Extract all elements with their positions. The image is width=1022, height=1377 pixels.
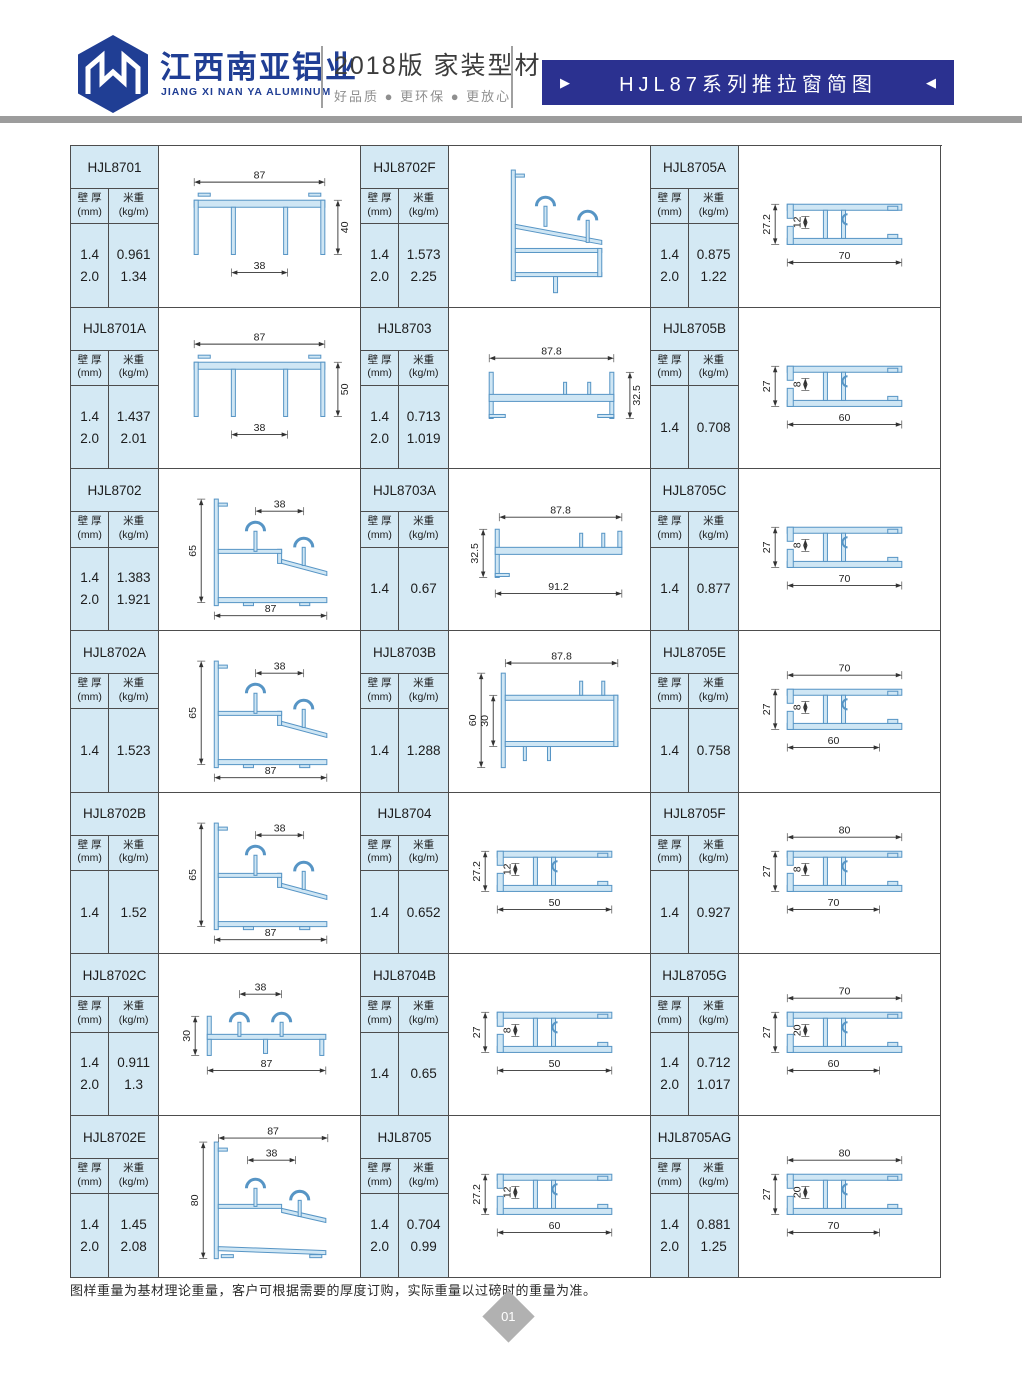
profile-cell-hjl8703: HJL8703壁 厚(mm)米重(kg/m)1.42.00.7131.01987… <box>361 308 651 470</box>
weight-values: 0.877 <box>689 548 738 630</box>
svg-text:87: 87 <box>265 765 277 777</box>
profile-drawing: 7027860 <box>739 631 940 792</box>
svg-text:30: 30 <box>479 715 491 727</box>
weight-value: 0.708 <box>697 420 731 435</box>
thickness-values: 1.42.0 <box>71 224 109 306</box>
spec-table-body: 1.42.01.5732.25 <box>361 224 448 306</box>
weight-value: 1.22 <box>700 269 726 284</box>
weight-header: 米重(kg/m) <box>399 836 448 870</box>
weight-header: 米重(kg/m) <box>689 512 738 546</box>
weight-values: 0.7131.019 <box>399 386 448 468</box>
weight-header: 米重(kg/m) <box>689 189 738 223</box>
model-label: HJL8701A <box>71 308 158 351</box>
weight-values: 0.8751.22 <box>689 224 738 306</box>
thickness-value: 1.4 <box>80 905 99 920</box>
thickness-header: 壁 厚(mm) <box>361 189 399 223</box>
thickness-value: 2.0 <box>660 1077 679 1092</box>
thickness-value: 1.4 <box>370 409 389 424</box>
svg-text:87: 87 <box>265 927 277 939</box>
model-label: HJL8701 <box>71 146 158 189</box>
profile-drawing: 70272060 <box>739 954 940 1115</box>
spec-table-header: 壁 厚(mm)米重(kg/m) <box>361 189 448 224</box>
profile-drawing: 27.21260 <box>449 1116 650 1277</box>
weight-value: 1.019 <box>407 431 441 446</box>
model-label: HJL8705F <box>651 793 738 836</box>
profile-info-panel: HJL8704B壁 厚(mm)米重(kg/m)1.40.65 <box>361 954 449 1115</box>
profile-info-panel: HJL8702A壁 厚(mm)米重(kg/m)1.41.523 <box>71 631 159 792</box>
model-label: HJL8705G <box>651 954 738 997</box>
thickness-header: 壁 厚(mm) <box>361 1159 399 1193</box>
profile-info-panel: HJL8705C壁 厚(mm)米重(kg/m)1.40.877 <box>651 469 739 630</box>
profile-cell-hjl8703b: HJL8703B壁 厚(mm)米重(kg/m)1.41.28887.86030 <box>361 631 651 793</box>
model-label: HJL8702B <box>71 793 158 836</box>
svg-text:70: 70 <box>828 897 840 909</box>
profile-drawing: 386587 <box>159 631 360 792</box>
weight-value: 1.52 <box>120 905 146 920</box>
thickness-header: 壁 厚(mm) <box>651 351 689 385</box>
weight-values: 0.9111.3 <box>109 1033 158 1115</box>
weight-value: 0.961 <box>117 247 151 262</box>
svg-text:8: 8 <box>501 1028 513 1034</box>
spec-table-header: 壁 厚(mm)米重(kg/m) <box>361 351 448 386</box>
model-label: HJL8705B <box>651 308 738 351</box>
thickness-value: 1.4 <box>660 743 679 758</box>
weight-values: 0.7121.017 <box>689 1033 738 1115</box>
svg-text:27.2: 27.2 <box>761 214 773 235</box>
profile-cell-hjl8701a: HJL8701A壁 厚(mm)米重(kg/m)1.42.01.4372.0187… <box>71 308 361 470</box>
spec-table-body: 1.40.652 <box>361 871 448 953</box>
model-label: HJL8702 <box>71 469 158 512</box>
tagline: 好品质 ● 更环保 ● 更放心 <box>334 86 511 105</box>
profile-info-panel: HJL8705F壁 厚(mm)米重(kg/m)1.40.927 <box>651 793 739 954</box>
profile-cell-hjl8702f: HJL8702F壁 厚(mm)米重(kg/m)1.42.01.5732.25 <box>361 146 651 308</box>
svg-text:60: 60 <box>467 714 479 726</box>
thickness-values: 1.4 <box>651 386 689 468</box>
spec-table-header: 壁 厚(mm)米重(kg/m) <box>651 189 738 224</box>
profile-info-panel: HJL8702E壁 厚(mm)米重(kg/m)1.42.01.452.08 <box>71 1116 159 1277</box>
thickness-values: 1.4 <box>361 709 399 791</box>
company-name-cn: 江西南亚铝业 <box>160 42 358 87</box>
weight-values: 1.52 <box>109 871 158 953</box>
thickness-values: 1.4 <box>361 871 399 953</box>
profile-drawing: 80272070 <box>739 1116 940 1277</box>
svg-text:87: 87 <box>254 331 266 343</box>
weight-header: 米重(kg/m) <box>689 836 738 870</box>
spec-table-body: 1.40.67 <box>361 548 448 630</box>
profile-grid: HJL8701壁 厚(mm)米重(kg/m)1.42.00.9611.34873… <box>70 145 942 1278</box>
weight-header: 米重(kg/m) <box>109 836 158 870</box>
spec-table-body: 1.42.01.3831.921 <box>71 548 158 630</box>
svg-text:20: 20 <box>791 1186 803 1198</box>
profile-cell-hjl8705a: HJL8705A壁 厚(mm)米重(kg/m)1.42.00.8751.2227… <box>651 146 941 308</box>
thickness-header: 壁 厚(mm) <box>361 836 399 870</box>
model-label: HJL8702E <box>71 1116 158 1159</box>
profile-cell-hjl8702a: HJL8702A壁 厚(mm)米重(kg/m)1.41.523386587 <box>71 631 361 793</box>
weight-value: 1.523 <box>117 743 151 758</box>
profile-drawing: 8027870 <box>739 793 940 954</box>
thickness-value: 2.0 <box>80 269 99 284</box>
profile-info-panel: HJL8702壁 厚(mm)米重(kg/m)1.42.01.3831.921 <box>71 469 159 630</box>
thickness-header: 壁 厚(mm) <box>361 351 399 385</box>
weight-value: 1.921 <box>117 592 151 607</box>
weight-values: 0.758 <box>689 709 738 791</box>
thickness-values: 1.4 <box>361 548 399 630</box>
weight-header: 米重(kg/m) <box>399 512 448 546</box>
weight-value: 1.437 <box>117 409 151 424</box>
profile-info-panel: HJL8705AG壁 厚(mm)米重(kg/m)1.42.00.8811.25 <box>651 1116 739 1277</box>
svg-text:38: 38 <box>255 982 267 994</box>
profile-drawing: 87.832.5 <box>449 308 650 469</box>
model-label: HJL8702A <box>71 631 158 674</box>
profile-info-panel: HJL8705A壁 厚(mm)米重(kg/m)1.42.00.8751.22 <box>651 146 739 307</box>
weight-header: 米重(kg/m) <box>689 1159 738 1193</box>
weight-header: 米重(kg/m) <box>109 512 158 546</box>
thickness-value: 1.4 <box>660 905 679 920</box>
thickness-value: 2.0 <box>80 1077 99 1092</box>
thickness-values: 1.42.0 <box>71 386 109 468</box>
weight-values: 0.927 <box>689 871 738 953</box>
footer-note: 图样重量为基材理论重量，客户可根据需要的厚度订购，实际重量以过磅时的重量为准。 <box>70 1280 597 1299</box>
weight-header: 米重(kg/m) <box>689 997 738 1031</box>
weight-values: 1.3831.921 <box>109 548 158 630</box>
weight-header: 米重(kg/m) <box>109 351 158 385</box>
thickness-values: 1.42.0 <box>71 1194 109 1276</box>
svg-text:60: 60 <box>549 1220 561 1232</box>
weight-values: 1.4372.01 <box>109 386 158 468</box>
thickness-values: 1.4 <box>651 709 689 791</box>
header-divider <box>321 46 323 108</box>
weight-values: 1.288 <box>399 709 448 791</box>
spec-table-body: 1.42.00.7040.99 <box>361 1194 448 1276</box>
thickness-values: 1.42.0 <box>361 1194 399 1276</box>
svg-text:87: 87 <box>261 1058 273 1070</box>
thickness-value: 2.0 <box>80 592 99 607</box>
header-divider <box>511 46 513 108</box>
profile-info-panel: HJL8705B壁 厚(mm)米重(kg/m)1.40.708 <box>651 308 739 469</box>
thickness-header: 壁 厚(mm) <box>651 836 689 870</box>
thickness-values: 1.42.0 <box>651 224 689 306</box>
thickness-header: 壁 厚(mm) <box>651 674 689 708</box>
thickness-value: 1.4 <box>80 570 99 585</box>
series-banner: ▶ HJL87系列推拉窗简图 ◀ <box>542 60 954 105</box>
svg-text:8: 8 <box>791 381 803 387</box>
spec-table-body: 1.40.927 <box>651 871 738 953</box>
spec-table-header: 壁 厚(mm)米重(kg/m) <box>361 674 448 709</box>
thickness-header: 壁 厚(mm) <box>71 189 109 223</box>
spec-table-header: 壁 厚(mm)米重(kg/m) <box>651 1159 738 1194</box>
svg-text:87.8: 87.8 <box>550 505 571 517</box>
thickness-values: 1.4 <box>651 548 689 630</box>
model-label: HJL8705C <box>651 469 738 512</box>
weight-value: 0.911 <box>117 1055 150 1070</box>
thickness-header: 壁 厚(mm) <box>71 674 109 708</box>
svg-text:27: 27 <box>761 380 773 392</box>
thickness-header: 壁 厚(mm) <box>651 512 689 546</box>
banner-right-arrow-icon: ◀ <box>926 75 936 91</box>
profile-info-panel: HJL8702F壁 厚(mm)米重(kg/m)1.42.01.5732.25 <box>361 146 449 307</box>
thickness-value: 1.4 <box>660 247 679 262</box>
spec-table-header: 壁 厚(mm)米重(kg/m) <box>361 836 448 871</box>
profile-drawing: 27850 <box>449 954 650 1115</box>
svg-text:38: 38 <box>254 260 266 272</box>
profile-drawing: 27860 <box>739 308 940 469</box>
spec-table-header: 壁 厚(mm)米重(kg/m) <box>651 674 738 709</box>
thickness-value: 1.4 <box>80 409 99 424</box>
profile-drawing: 87.86030 <box>449 631 650 792</box>
catalog-page: { "header": { "company_cn": "江西南亚铝业", "c… <box>0 0 1022 1377</box>
svg-text:87: 87 <box>267 1126 279 1138</box>
weight-value: 0.758 <box>697 743 731 758</box>
svg-text:32.5: 32.5 <box>469 543 481 564</box>
svg-text:60: 60 <box>828 1058 840 1070</box>
banner-left-arrow-icon: ▶ <box>560 75 570 91</box>
spec-table-header: 壁 厚(mm)米重(kg/m) <box>651 997 738 1032</box>
weight-header: 米重(kg/m) <box>109 997 158 1031</box>
profile-drawing: 27.21270 <box>739 146 940 307</box>
series-banner-title: HJL87系列推拉窗简图 <box>619 68 877 97</box>
thickness-header: 壁 厚(mm) <box>71 997 109 1031</box>
svg-text:65: 65 <box>187 707 199 719</box>
header-rule <box>0 116 1022 123</box>
model-label: HJL8705E <box>651 631 738 674</box>
thickness-values: 1.42.0 <box>71 548 109 630</box>
svg-text:27.2: 27.2 <box>471 861 483 882</box>
spec-table-body: 1.42.00.9111.3 <box>71 1033 158 1115</box>
spec-table-body: 1.40.877 <box>651 548 738 630</box>
weight-value: 1.3 <box>124 1077 143 1092</box>
profile-cell-hjl8705f: HJL8705F壁 厚(mm)米重(kg/m)1.40.9278027870 <box>651 793 941 955</box>
weight-value: 0.704 <box>407 1217 441 1232</box>
thickness-header: 壁 厚(mm) <box>71 512 109 546</box>
weight-value: 0.927 <box>697 905 731 920</box>
company-name-en: JIANG XI NAN YA ALUMINUM <box>161 86 331 98</box>
spec-table-header: 壁 厚(mm)米重(kg/m) <box>71 997 158 1032</box>
weight-header: 米重(kg/m) <box>109 189 158 223</box>
weight-value: 1.45 <box>120 1217 146 1232</box>
weight-value: 2.08 <box>120 1239 146 1254</box>
profile-cell-hjl8705g: HJL8705G壁 厚(mm)米重(kg/m)1.42.00.7121.0177… <box>651 954 941 1116</box>
profile-cell-hjl8702b: HJL8702B壁 厚(mm)米重(kg/m)1.41.52386587 <box>71 793 361 955</box>
profile-cell-hjl8705: HJL8705壁 厚(mm)米重(kg/m)1.42.00.7040.9927.… <box>361 1116 651 1278</box>
svg-text:27: 27 <box>471 1027 483 1039</box>
profile-cell-hjl8703a: HJL8703A壁 厚(mm)米重(kg/m)1.40.6787.832.591… <box>361 469 651 631</box>
weight-values: 0.8811.25 <box>689 1194 738 1276</box>
model-label: HJL8703B <box>361 631 448 674</box>
svg-text:70: 70 <box>828 1220 840 1232</box>
thickness-header: 壁 厚(mm) <box>361 674 399 708</box>
svg-text:12: 12 <box>791 216 803 228</box>
profile-info-panel: HJL8703B壁 厚(mm)米重(kg/m)1.41.288 <box>361 631 449 792</box>
spec-table-body: 1.42.00.9611.34 <box>71 224 158 306</box>
spec-table-body: 1.41.288 <box>361 709 448 791</box>
spec-table-header: 壁 厚(mm)米重(kg/m) <box>71 836 158 871</box>
company-logo <box>76 34 150 119</box>
profile-drawing: 873840 <box>159 146 360 307</box>
profile-info-panel: HJL8702B壁 厚(mm)米重(kg/m)1.41.52 <box>71 793 159 954</box>
svg-text:27: 27 <box>761 703 773 715</box>
profile-drawing: 386587 <box>159 469 360 630</box>
weight-header: 米重(kg/m) <box>399 997 448 1031</box>
thickness-value: 1.4 <box>80 743 99 758</box>
svg-text:27: 27 <box>761 542 773 554</box>
svg-text:60: 60 <box>828 735 840 747</box>
svg-text:50: 50 <box>339 383 351 395</box>
weight-values: 0.65 <box>399 1033 448 1115</box>
svg-text:70: 70 <box>839 250 851 262</box>
thickness-values: 1.42.0 <box>71 1033 109 1115</box>
svg-text:87.8: 87.8 <box>551 651 572 663</box>
thickness-value: 1.4 <box>370 905 389 920</box>
spec-table-body: 1.42.00.8751.22 <box>651 224 738 306</box>
thickness-header: 壁 厚(mm) <box>651 997 689 1031</box>
profile-drawing: 873850 <box>159 308 360 469</box>
model-label: HJL8703 <box>361 308 448 351</box>
svg-text:38: 38 <box>266 1148 278 1160</box>
spec-table-header: 壁 厚(mm)米重(kg/m) <box>651 512 738 547</box>
svg-text:8: 8 <box>791 866 803 872</box>
weight-header: 米重(kg/m) <box>109 1159 158 1193</box>
profile-cell-hjl8701: HJL8701壁 厚(mm)米重(kg/m)1.42.00.9611.34873… <box>71 146 361 308</box>
weight-header: 米重(kg/m) <box>689 674 738 708</box>
thickness-values: 1.42.0 <box>361 224 399 306</box>
spec-table-body: 1.40.758 <box>651 709 738 791</box>
thickness-value: 2.0 <box>370 431 389 446</box>
svg-text:12: 12 <box>501 1186 513 1198</box>
weight-values: 1.5732.25 <box>399 224 448 306</box>
model-label: HJL8702F <box>361 146 448 189</box>
profile-info-panel: HJL8701壁 厚(mm)米重(kg/m)1.42.00.9611.34 <box>71 146 159 307</box>
weight-header: 米重(kg/m) <box>689 351 738 385</box>
weight-value: 0.877 <box>697 581 731 596</box>
spec-table-header: 壁 厚(mm)米重(kg/m) <box>71 351 158 386</box>
profile-cell-hjl8705e: HJL8705E壁 厚(mm)米重(kg/m)1.40.7587027860 <box>651 631 941 793</box>
svg-text:70: 70 <box>839 986 851 998</box>
svg-text:50: 50 <box>549 1058 561 1070</box>
svg-text:20: 20 <box>791 1025 803 1037</box>
spec-table-header: 壁 厚(mm)米重(kg/m) <box>651 836 738 871</box>
profile-info-panel: HJL8705壁 厚(mm)米重(kg/m)1.42.00.7040.99 <box>361 1116 449 1277</box>
model-label: HJL8703A <box>361 469 448 512</box>
weight-value: 2.01 <box>120 431 146 446</box>
profile-info-panel: HJL8703壁 厚(mm)米重(kg/m)1.42.00.7131.019 <box>361 308 449 469</box>
svg-text:80: 80 <box>189 1194 201 1206</box>
profile-cell-hjl8705b: HJL8705B壁 厚(mm)米重(kg/m)1.40.70827860 <box>651 308 941 470</box>
model-label: HJL8702C <box>71 954 158 997</box>
svg-text:27: 27 <box>761 1188 773 1200</box>
profile-info-panel: HJL8705E壁 厚(mm)米重(kg/m)1.40.758 <box>651 631 739 792</box>
weight-header: 米重(kg/m) <box>399 351 448 385</box>
profile-info-panel: HJL8702C壁 厚(mm)米重(kg/m)1.42.00.9111.3 <box>71 954 159 1115</box>
weight-value: 0.65 <box>410 1066 436 1081</box>
page-number: 01 <box>501 1309 515 1324</box>
thickness-value: 1.4 <box>370 581 389 596</box>
weight-values: 0.9611.34 <box>109 224 158 306</box>
model-label: HJL8705 <box>361 1116 448 1159</box>
svg-text:8: 8 <box>791 543 803 549</box>
weight-values: 1.523 <box>109 709 158 791</box>
svg-text:80: 80 <box>839 824 851 836</box>
spec-table-body: 1.41.52 <box>71 871 158 953</box>
spec-table-body: 1.41.523 <box>71 709 158 791</box>
svg-text:87: 87 <box>254 170 266 182</box>
weight-header: 米重(kg/m) <box>399 189 448 223</box>
weight-value: 1.383 <box>117 570 151 585</box>
profile-drawing: 873880 <box>159 1116 360 1277</box>
profile-drawing <box>449 146 650 307</box>
thickness-value: 2.0 <box>660 1239 679 1254</box>
profile-info-panel: HJL8701A壁 厚(mm)米重(kg/m)1.42.01.4372.01 <box>71 308 159 469</box>
svg-text:38: 38 <box>274 661 286 673</box>
svg-text:27.2: 27.2 <box>471 1184 483 1205</box>
weight-value: 1.288 <box>407 743 441 758</box>
thickness-header: 壁 厚(mm) <box>71 351 109 385</box>
model-label: HJL8705AG <box>651 1116 738 1159</box>
spec-table-body: 1.42.00.8811.25 <box>651 1194 738 1276</box>
thickness-value: 2.0 <box>80 431 99 446</box>
thickness-value: 1.4 <box>660 1055 679 1070</box>
weight-values: 0.652 <box>399 871 448 953</box>
model-label: HJL8705A <box>651 146 738 189</box>
profile-cell-hjl8705ag: HJL8705AG壁 厚(mm)米重(kg/m)1.42.00.8811.258… <box>651 1116 941 1278</box>
model-label: HJL8704B <box>361 954 448 997</box>
spec-table-header: 壁 厚(mm)米重(kg/m) <box>361 997 448 1032</box>
thickness-values: 1.4 <box>651 871 689 953</box>
weight-value: 2.25 <box>410 269 436 284</box>
profile-info-panel: HJL8705G壁 厚(mm)米重(kg/m)1.42.00.7121.017 <box>651 954 739 1115</box>
weight-value: 1.34 <box>120 269 146 284</box>
weight-value: 1.25 <box>700 1239 726 1254</box>
svg-text:8: 8 <box>791 704 803 710</box>
svg-text:70: 70 <box>839 663 851 675</box>
thickness-header: 壁 厚(mm) <box>71 836 109 870</box>
spec-table-body: 1.42.01.452.08 <box>71 1194 158 1276</box>
thickness-values: 1.42.0 <box>361 386 399 468</box>
svg-text:27: 27 <box>761 865 773 877</box>
thickness-values: 1.4 <box>71 709 109 791</box>
weight-value: 0.875 <box>697 247 731 262</box>
svg-text:38: 38 <box>274 499 286 511</box>
svg-text:27: 27 <box>761 1027 773 1039</box>
weight-header: 米重(kg/m) <box>399 674 448 708</box>
profile-info-panel: HJL8704壁 厚(mm)米重(kg/m)1.40.652 <box>361 793 449 954</box>
profile-cell-hjl8705c: HJL8705C壁 厚(mm)米重(kg/m)1.40.87727870 <box>651 469 941 631</box>
thickness-values: 1.42.0 <box>651 1194 689 1276</box>
profile-drawing: 87.832.591.2 <box>449 469 650 630</box>
weight-value: 1.573 <box>407 247 441 262</box>
weight-values: 0.7040.99 <box>399 1194 448 1276</box>
profile-drawing: 386587 <box>159 793 360 954</box>
spec-table-body: 1.42.00.7131.019 <box>361 386 448 468</box>
spec-table-header: 壁 厚(mm)米重(kg/m) <box>71 674 158 709</box>
thickness-value: 2.0 <box>660 269 679 284</box>
weight-value: 0.713 <box>407 409 441 424</box>
svg-text:60: 60 <box>839 412 851 424</box>
thickness-value: 1.4 <box>80 1217 99 1232</box>
spec-table-header: 壁 厚(mm)米重(kg/m) <box>361 1159 448 1194</box>
weight-value: 0.712 <box>697 1055 731 1070</box>
weight-values: 1.452.08 <box>109 1194 158 1276</box>
thickness-value: 1.4 <box>80 1055 99 1070</box>
weight-values: 0.67 <box>399 548 448 630</box>
weight-value: 1.017 <box>697 1077 731 1092</box>
thickness-header: 壁 厚(mm) <box>361 512 399 546</box>
weight-header: 米重(kg/m) <box>109 674 158 708</box>
thickness-value: 1.4 <box>370 247 389 262</box>
thickness-value: 1.4 <box>660 420 679 435</box>
svg-text:80: 80 <box>839 1148 851 1160</box>
svg-text:65: 65 <box>187 545 199 557</box>
weight-value: 0.881 <box>697 1217 731 1232</box>
